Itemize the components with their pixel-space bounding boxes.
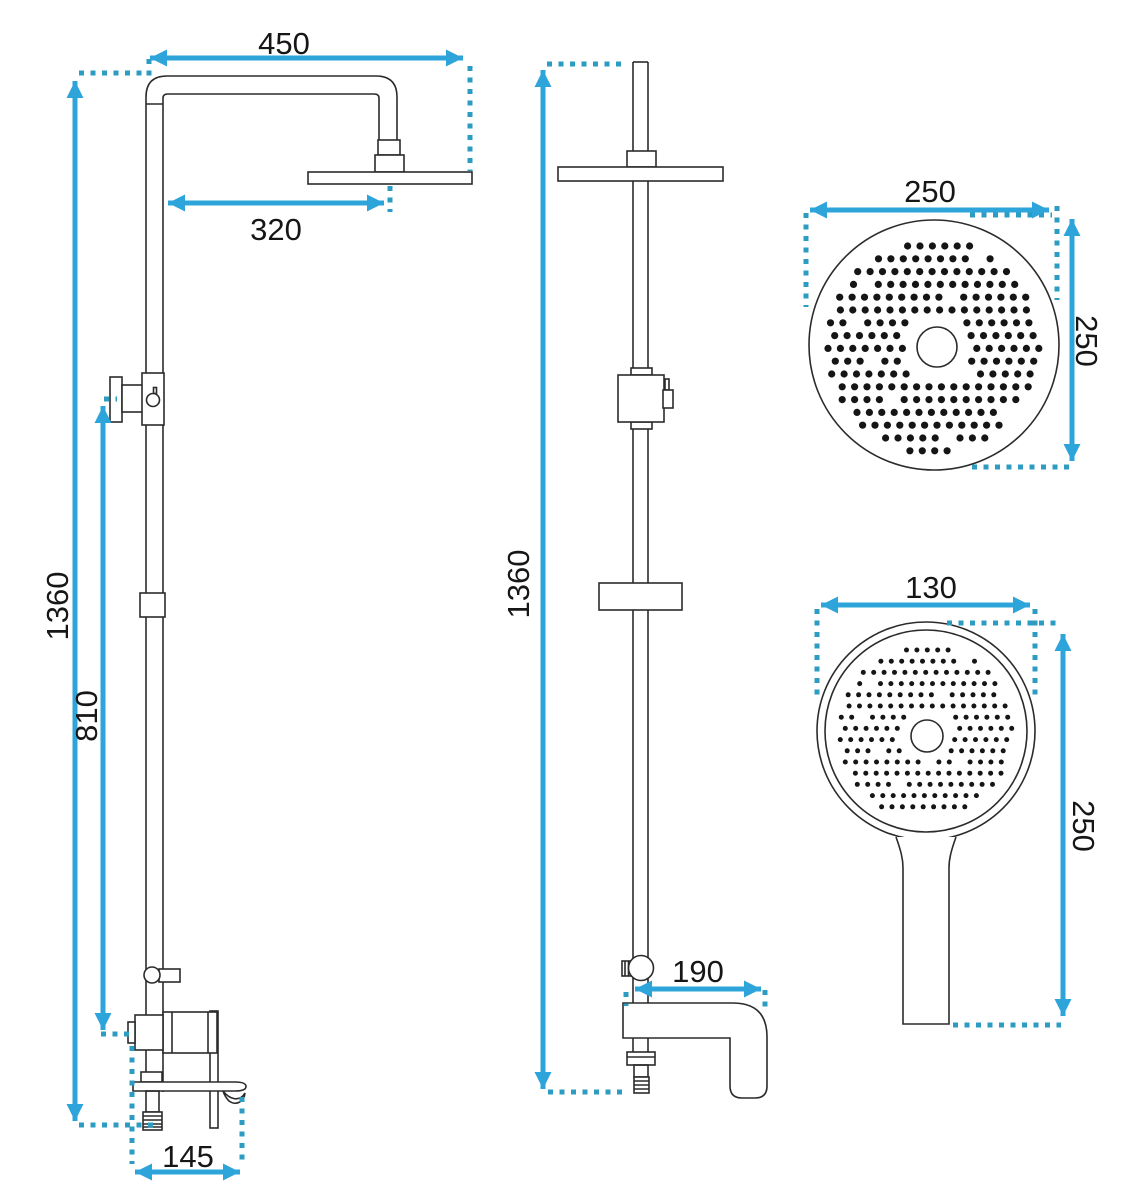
spray-nozzle-dot xyxy=(890,804,895,809)
spray-nozzle-dot xyxy=(992,704,997,709)
spray-nozzle-dot xyxy=(900,255,907,262)
spray-nozzle-dot xyxy=(991,268,998,275)
dim-label-arm-reach: 450 xyxy=(258,26,310,61)
spray-nozzle-dot xyxy=(953,715,958,720)
front-head-connector xyxy=(375,140,404,172)
spray-nozzle-dot xyxy=(985,294,992,301)
spray-nozzle-dot xyxy=(937,255,944,262)
spray-nozzle-dot xyxy=(952,804,957,809)
spray-nozzle-dot xyxy=(901,396,908,403)
front-shower-arm xyxy=(146,76,397,140)
spray-nozzle-dot xyxy=(978,760,983,765)
spray-nozzle-dot xyxy=(1003,704,1008,709)
spray-nozzle-dot xyxy=(909,422,916,429)
spray-nozzle-dot xyxy=(906,447,913,454)
spray-nozzle-dot xyxy=(888,681,893,686)
spray-nozzle-dot xyxy=(895,726,900,731)
front-pipe-flange xyxy=(141,1072,162,1082)
front-slider-block xyxy=(140,593,165,617)
spray-nozzle-dot xyxy=(867,704,872,709)
spray-nozzle-dot xyxy=(947,771,952,776)
spray-nozzle-dot xyxy=(850,281,857,288)
front-dimensions: 450 320 1360 810 145 xyxy=(40,26,470,1174)
hand-shower-center-hole xyxy=(911,720,943,752)
spray-nozzle-dot xyxy=(973,737,978,742)
spray-nozzle-dot xyxy=(853,760,858,765)
spray-nozzle-dot xyxy=(954,670,959,675)
spray-nozzle-dot xyxy=(963,396,970,403)
spray-nozzle-dot xyxy=(964,715,969,720)
spray-nozzle-dot xyxy=(949,255,956,262)
spray-nozzle-dot xyxy=(925,648,930,653)
spray-nozzle-dot xyxy=(919,692,924,697)
spray-nozzle-dot xyxy=(837,345,844,352)
spray-nozzle-dot xyxy=(921,422,928,429)
spray-nozzle-dot xyxy=(917,782,922,787)
spray-nozzle-dot xyxy=(913,396,920,403)
spray-nozzle-dot xyxy=(888,704,893,709)
spray-nozzle-dot xyxy=(839,319,846,326)
spray-nozzle-dot xyxy=(878,409,885,416)
spray-nozzle-dot xyxy=(1009,726,1014,731)
spray-nozzle-dot xyxy=(891,793,896,798)
spray-nozzle-dot xyxy=(898,294,905,301)
spray-nozzle-dot xyxy=(957,726,962,731)
spray-nozzle-dot xyxy=(908,692,913,697)
spray-nozzle-dot xyxy=(995,422,1002,429)
spray-nozzle-dot xyxy=(876,383,883,390)
spray-nozzle-dot xyxy=(942,804,947,809)
spray-nozzle-dot xyxy=(827,319,834,326)
spray-nozzle-dot xyxy=(946,422,953,429)
spray-nozzle-dot xyxy=(929,242,936,249)
spray-nozzle-dot xyxy=(848,737,853,742)
spray-nozzle-dot xyxy=(925,255,932,262)
spray-nozzle-dot xyxy=(916,242,923,249)
spray-nozzle-dot xyxy=(900,804,905,809)
spray-nozzle-dot xyxy=(968,358,975,365)
spray-nozzle-dot xyxy=(907,434,914,441)
spray-nozzle-dot xyxy=(1004,737,1009,742)
spray-nozzle-dot xyxy=(1000,396,1007,403)
spray-nozzle-dot xyxy=(953,409,960,416)
hand-shower-dimensions: 130 250 xyxy=(817,570,1101,1025)
dim-label-bracket-height: 810 xyxy=(69,690,104,742)
spray-nozzle-dot xyxy=(898,692,903,697)
spray-nozzle-dot xyxy=(880,715,885,720)
spray-nozzle-dot xyxy=(976,319,983,326)
spray-nozzle-dot xyxy=(941,659,946,664)
spray-nozzle-dot xyxy=(928,782,933,787)
side-diverter-knob xyxy=(622,956,654,981)
spray-nozzle-dot xyxy=(987,383,994,390)
spray-nozzle-dot xyxy=(911,306,918,313)
spray-nozzle-dot xyxy=(1005,715,1010,720)
spray-nozzle-dot xyxy=(975,396,982,403)
spray-nozzle-dot xyxy=(894,434,901,441)
spray-nozzle-dot xyxy=(899,704,904,709)
spray-nozzle-dot xyxy=(870,793,875,798)
spray-nozzle-dot xyxy=(891,715,896,720)
spray-nozzle-dot xyxy=(999,771,1004,776)
spray-nozzle-dot xyxy=(921,804,926,809)
spray-nozzle-dot xyxy=(884,771,889,776)
spray-nozzle-dot xyxy=(988,760,993,765)
spray-nozzle-dot xyxy=(929,692,934,697)
spray-nozzle-dot xyxy=(899,306,906,313)
spray-nozzle-dot xyxy=(878,659,883,664)
spray-nozzle-dot xyxy=(947,760,952,765)
spray-nozzle-dot xyxy=(887,692,892,697)
spray-nozzle-dot xyxy=(919,704,924,709)
spray-nozzle-dot xyxy=(932,434,939,441)
spray-nozzle-dot xyxy=(940,704,945,709)
spray-nozzle-dot xyxy=(871,670,876,675)
spray-nozzle-dot xyxy=(1001,748,1006,753)
spray-nozzle-dot xyxy=(873,294,880,301)
spray-nozzle-dot xyxy=(890,370,897,377)
spray-nozzle-dot xyxy=(1017,332,1024,339)
spray-nozzle-dot xyxy=(920,681,925,686)
spray-nozzle-dot xyxy=(980,782,985,787)
spray-nozzle-dot xyxy=(932,793,937,798)
spray-nozzle-dot xyxy=(1011,281,1018,288)
spray-nozzle-dot xyxy=(912,281,919,288)
spray-nozzle-dot xyxy=(1025,319,1032,326)
spray-nozzle-dot xyxy=(978,771,983,776)
spray-nozzle-dot xyxy=(882,434,889,441)
spray-nozzle-dot xyxy=(923,670,928,675)
spray-nozzle-dot xyxy=(1012,396,1019,403)
spray-nozzle-dot xyxy=(1025,383,1032,390)
spray-nozzle-dot xyxy=(841,370,848,377)
spray-nozzle-dot xyxy=(865,370,872,377)
spray-nozzle-dot xyxy=(930,681,935,686)
spray-nozzle-dot xyxy=(849,306,856,313)
spray-nozzle-dot xyxy=(867,692,872,697)
spray-nozzle-dot xyxy=(892,670,897,675)
spray-nozzle-dot xyxy=(954,242,961,249)
spray-nozzle-dot xyxy=(879,804,884,809)
spray-nozzle-dot xyxy=(886,782,891,787)
spray-nozzle-dot xyxy=(1022,294,1029,301)
spray-nozzle-dot xyxy=(832,358,839,365)
spray-nozzle-dot xyxy=(922,793,927,798)
spray-nozzle-dot xyxy=(944,447,951,454)
spray-nozzle-dot xyxy=(881,332,888,339)
spray-nozzle-dot xyxy=(882,670,887,675)
spray-nozzle-dot xyxy=(849,715,854,720)
spray-nozzle-dot xyxy=(866,409,873,416)
spray-nozzle-dot xyxy=(1005,332,1012,339)
spray-nozzle-dot xyxy=(887,281,894,288)
spray-nozzle-dot xyxy=(934,670,939,675)
rain-head-center-hole xyxy=(917,327,957,367)
spray-nozzle-dot xyxy=(890,737,895,742)
spray-nozzle-dot xyxy=(968,726,973,731)
spray-nozzle-dot xyxy=(919,434,926,441)
spray-nozzle-dot xyxy=(838,737,843,742)
spray-nozzle-dot xyxy=(966,242,973,249)
spray-nozzle-dot xyxy=(977,370,984,377)
spray-nozzle-dot xyxy=(950,383,957,390)
spray-nozzle-dot xyxy=(916,760,921,765)
spray-nozzle-dot xyxy=(994,737,999,742)
spray-nozzle-dot xyxy=(925,396,932,403)
front-view: 450 320 1360 810 145 xyxy=(40,26,472,1174)
spray-nozzle-dot xyxy=(933,422,940,429)
spray-nozzle-dot xyxy=(886,345,893,352)
spray-nozzle-dot xyxy=(889,659,894,664)
spray-nozzle-dot xyxy=(989,370,996,377)
spray-nozzle-dot xyxy=(864,760,869,765)
spray-nozzle-dot xyxy=(895,771,900,776)
spray-nozzle-dot xyxy=(846,692,851,697)
spray-nozzle-dot xyxy=(874,345,881,352)
spray-nozzle-dot xyxy=(851,383,858,390)
spray-nozzle-dot xyxy=(839,396,846,403)
spray-nozzle-dot xyxy=(999,281,1006,288)
spray-nozzle-dot xyxy=(919,447,926,454)
spray-nozzle-dot xyxy=(931,447,938,454)
spray-nozzle-dot xyxy=(980,332,987,339)
spray-nozzle-dot xyxy=(962,281,969,288)
spray-nozzle-dot xyxy=(867,268,874,275)
spray-nozzle-dot xyxy=(986,670,991,675)
spray-nozzle-dot xyxy=(1001,319,1008,326)
spray-nozzle-dot xyxy=(1010,294,1017,301)
spray-nozzle-dot xyxy=(1012,383,1019,390)
spray-nozzle-dot xyxy=(845,748,850,753)
spray-nozzle-dot xyxy=(960,294,967,301)
spray-nozzle-dot xyxy=(912,793,917,798)
spray-nozzle-dot xyxy=(857,358,864,365)
spray-nozzle-dot xyxy=(986,306,993,313)
spray-nozzle-dot xyxy=(949,281,956,288)
spray-nozzle-dot xyxy=(1030,358,1037,365)
spray-nozzle-dot xyxy=(853,771,858,776)
spray-nozzle-dot xyxy=(904,268,911,275)
spray-nozzle-dot xyxy=(876,396,883,403)
spray-nozzle-dot xyxy=(973,294,980,301)
spray-nozzle-dot xyxy=(899,659,904,664)
spray-nozzle-dot xyxy=(868,332,875,339)
side-wall-bracket xyxy=(618,368,673,429)
spray-nozzle-dot xyxy=(901,793,906,798)
front-mixer-body xyxy=(128,1011,218,1128)
spray-nozzle-dot xyxy=(929,268,936,275)
spray-nozzle-dot xyxy=(962,804,967,809)
spray-nozzle-dot xyxy=(1003,268,1010,275)
dim-label-base-width: 145 xyxy=(162,1139,214,1174)
spray-nozzle-dot xyxy=(986,281,993,288)
spray-nozzle-dot xyxy=(891,268,898,275)
spray-nozzle-dot xyxy=(974,281,981,288)
spray-nozzle-dot xyxy=(859,422,866,429)
spray-nozzle-dot xyxy=(857,681,862,686)
spray-nozzle-dot xyxy=(977,409,984,416)
spray-nozzle-dot xyxy=(999,760,1004,765)
spray-nozzle-dot xyxy=(980,748,985,753)
spray-nozzle-dot xyxy=(924,281,931,288)
spray-nozzle-dot xyxy=(941,242,948,249)
front-rain-head-plate xyxy=(308,172,472,184)
spray-nozzle-dot xyxy=(886,748,891,753)
hand-shower-detail: 130 250 xyxy=(817,570,1101,1025)
spray-nozzle-dot xyxy=(861,670,866,675)
spray-nozzle-dot xyxy=(901,319,908,326)
spray-nozzle-dot xyxy=(938,782,943,787)
spray-nozzle-dot xyxy=(990,409,997,416)
spray-nozzle-dot xyxy=(969,434,976,441)
spray-nozzle-dot xyxy=(943,793,948,798)
spray-nozzle-dot xyxy=(866,748,871,753)
spray-nozzle-dot xyxy=(855,782,860,787)
spray-nozzle-dot xyxy=(849,294,856,301)
spray-nozzle-dot xyxy=(1023,306,1030,313)
spray-nozzle-dot xyxy=(974,715,979,720)
spray-nozzle-dot xyxy=(896,422,903,429)
dim-label-hand-width: 130 xyxy=(905,570,957,605)
spray-nozzle-dot xyxy=(953,793,958,798)
spray-nozzle-dot xyxy=(887,255,894,262)
spray-nozzle-dot xyxy=(875,281,882,288)
spray-nozzle-dot xyxy=(998,306,1005,313)
spray-nozzle-dot xyxy=(983,422,990,429)
spray-nozzle-dot xyxy=(1027,370,1034,377)
spray-nozzle-dot xyxy=(988,726,993,731)
spray-nozzle-dot xyxy=(863,771,868,776)
spray-nozzle-dot xyxy=(915,771,920,776)
spray-nozzle-dot xyxy=(999,726,1004,731)
spray-nozzle-dot xyxy=(1002,370,1009,377)
spray-nozzle-dot xyxy=(874,760,879,765)
spray-nozzle-dot xyxy=(958,422,965,429)
spray-nozzle-dot xyxy=(828,370,835,377)
spray-nozzle-dot xyxy=(965,409,972,416)
spray-nozzle-dot xyxy=(1023,345,1030,352)
spray-nozzle-dot xyxy=(1005,358,1012,365)
spray-nozzle-dot xyxy=(1013,319,1020,326)
spray-nozzle-dot xyxy=(856,692,861,697)
spray-nozzle-dot xyxy=(959,782,964,787)
spray-nozzle-dot xyxy=(913,383,920,390)
spray-nozzle-dot xyxy=(972,681,977,686)
spray-nozzle-dot xyxy=(864,726,869,731)
spray-nozzle-dot xyxy=(963,383,970,390)
spray-nozzle-dot xyxy=(844,332,851,339)
spray-nozzle-dot xyxy=(978,726,983,731)
spray-nozzle-dot xyxy=(961,681,966,686)
spray-nozzle-dot xyxy=(903,409,910,416)
front-holder-clamp xyxy=(144,967,180,983)
spray-nozzle-dot xyxy=(844,358,851,365)
spray-nozzle-dot xyxy=(967,771,972,776)
spray-nozzle-dot xyxy=(878,704,883,709)
technical-drawing-canvas: 450 320 1360 810 145 xyxy=(0,0,1127,1200)
spray-nozzle-dot xyxy=(987,255,994,262)
spray-nozzle-dot xyxy=(965,670,970,675)
spray-nozzle-dot xyxy=(907,782,912,787)
spray-nozzle-dot xyxy=(971,422,978,429)
spray-nozzle-dot xyxy=(884,726,889,731)
spray-nozzle-dot xyxy=(900,281,907,288)
spray-nozzle-dot xyxy=(913,670,918,675)
spray-nozzle-dot xyxy=(953,268,960,275)
spray-nozzle-dot xyxy=(949,748,954,753)
spray-nozzle-dot xyxy=(973,306,980,313)
spray-nozzle-dot xyxy=(911,294,918,301)
spray-nozzle-dot xyxy=(864,319,871,326)
spray-nozzle-dot xyxy=(990,782,995,787)
spray-nozzle-dot xyxy=(886,294,893,301)
spray-nozzle-dot xyxy=(957,771,962,776)
spray-nozzle-dot xyxy=(1010,306,1017,313)
spray-nozzle-dot xyxy=(948,306,955,313)
front-wall-bracket xyxy=(110,373,164,425)
spray-nozzle-dot xyxy=(938,396,945,403)
spray-nozzle-dot xyxy=(950,692,955,697)
spray-nozzle-dot xyxy=(935,294,942,301)
spray-nozzle-dot xyxy=(983,737,988,742)
spray-nozzle-dot xyxy=(875,255,882,262)
side-hose-connector xyxy=(627,1052,655,1093)
spray-nozzle-dot xyxy=(966,268,973,275)
spray-nozzle-dot xyxy=(904,648,909,653)
spray-nozzle-dot xyxy=(899,681,904,686)
spray-nozzle-dot xyxy=(874,306,881,313)
spray-nozzle-dot xyxy=(912,255,919,262)
dim-label-rain-height: 250 xyxy=(1069,315,1104,367)
spray-nozzle-dot xyxy=(894,358,901,365)
spray-nozzle-dot xyxy=(923,294,930,301)
spray-nozzle-dot xyxy=(914,648,919,653)
spray-nozzle-dot xyxy=(877,319,884,326)
side-riser-pipe xyxy=(633,62,648,1052)
spray-nozzle-dot xyxy=(960,692,965,697)
spray-nozzle-dot xyxy=(925,383,932,390)
spray-nozzle-dot xyxy=(839,383,846,390)
spray-nozzle-dot xyxy=(1018,358,1025,365)
spray-nozzle-dot xyxy=(971,692,976,697)
spray-nozzle-dot xyxy=(869,737,874,742)
spray-nozzle-dot xyxy=(874,726,879,731)
spray-nozzle-dot xyxy=(938,383,945,390)
dim-label-spout-reach: 190 xyxy=(672,954,724,989)
spray-nozzle-dot xyxy=(970,748,975,753)
spray-nozzle-dot xyxy=(853,370,860,377)
dim-label-side-total-height: 1360 xyxy=(501,550,536,619)
spray-nozzle-dot xyxy=(901,383,908,390)
spray-nozzle-dot xyxy=(975,670,980,675)
spray-nozzle-dot xyxy=(936,760,941,765)
spray-nozzle-dot xyxy=(963,737,968,742)
spray-nozzle-dot xyxy=(843,726,848,731)
spray-nozzle-dot xyxy=(853,726,858,731)
spray-nozzle-dot xyxy=(969,782,974,787)
spray-nozzle-dot xyxy=(880,793,885,798)
spray-nozzle-dot xyxy=(910,659,915,664)
front-shelf xyxy=(133,1082,246,1103)
spray-nozzle-dot xyxy=(940,681,945,686)
spray-nozzle-dot xyxy=(843,760,848,765)
spray-nozzle-dot xyxy=(931,804,936,809)
hand-shower-handle xyxy=(896,837,956,1024)
spray-nozzle-dot xyxy=(916,268,923,275)
spray-nozzle-dot xyxy=(951,659,956,664)
spray-nozzle-dot xyxy=(1010,345,1017,352)
spray-nozzle-dot xyxy=(968,332,975,339)
